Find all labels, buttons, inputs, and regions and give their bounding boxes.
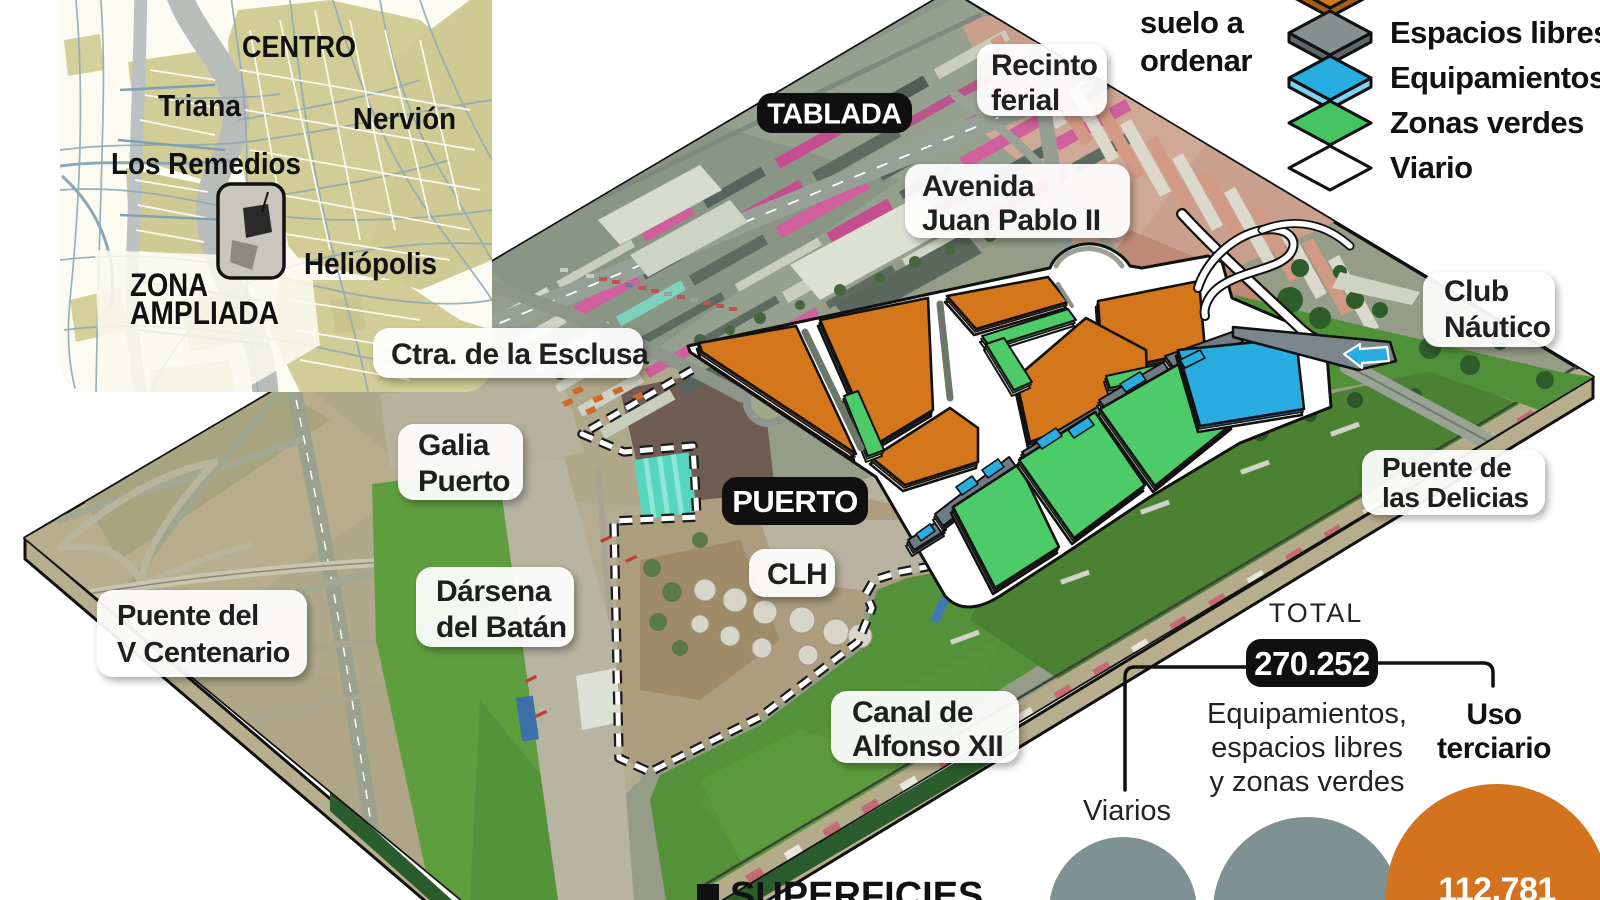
svg-text:Equipamientos: Equipamientos	[1390, 60, 1600, 95]
svg-text:PUERTO: PUERTO	[732, 484, 858, 519]
svg-text:Espacios libres: Espacios libres	[1390, 15, 1600, 50]
svg-text:Canal de: Canal de	[852, 696, 973, 729]
svg-text:Dársena: Dársena	[436, 575, 552, 608]
svg-text:AMPLIADA: AMPLIADA	[130, 295, 279, 331]
svg-text:CENTRO: CENTRO	[242, 29, 356, 64]
svg-text:terciario: terciario	[1437, 732, 1551, 765]
svg-text:SUPERFICIES: SUPERFICIES	[730, 875, 983, 900]
svg-text:Triana: Triana	[158, 88, 242, 123]
svg-text:suelo a: suelo a	[1140, 5, 1245, 40]
svg-text:TOTAL: TOTAL	[1269, 598, 1364, 628]
svg-text:Uso: Uso	[1466, 698, 1521, 731]
svg-text:Náutico: Náutico	[1444, 311, 1551, 344]
svg-text:del Batán: del Batán	[436, 611, 567, 644]
svg-text:V Centenario: V Centenario	[117, 637, 290, 669]
svg-text:Puente de: Puente de	[1382, 452, 1511, 483]
svg-text:Puerto: Puerto	[418, 465, 510, 498]
svg-text:espacios libres: espacios libres	[1211, 732, 1403, 764]
svg-text:Avenida: Avenida	[922, 170, 1035, 203]
svg-text:ordenar: ordenar	[1140, 43, 1252, 78]
svg-text:112.781: 112.781	[1438, 871, 1556, 900]
svg-text:las Delicias: las Delicias	[1382, 482, 1529, 513]
svg-text:Viario: Viario	[1390, 150, 1473, 185]
svg-text:270.252: 270.252	[1254, 645, 1370, 682]
svg-text:TABLADA: TABLADA	[767, 98, 902, 130]
svg-text:Puente del: Puente del	[117, 600, 259, 632]
svg-text:Viarios: Viarios	[1083, 795, 1171, 827]
svg-text:CLH: CLH	[767, 558, 827, 591]
svg-text:Ctra. de la Esclusa: Ctra. de la Esclusa	[391, 338, 649, 371]
svg-text:Nervión: Nervión	[353, 101, 456, 136]
svg-text:Los Remedios: Los Remedios	[111, 146, 301, 181]
svg-text:Heliópolis: Heliópolis	[304, 246, 437, 281]
svg-text:ferial: ferial	[991, 84, 1060, 117]
svg-text:Galia: Galia	[418, 429, 490, 462]
svg-text:Juan Pablo II: Juan Pablo II	[922, 204, 1101, 237]
svg-text:y zonas verdes: y zonas verdes	[1209, 766, 1404, 798]
svg-text:Zonas verdes: Zonas verdes	[1390, 105, 1584, 140]
svg-text:Equipamientos,: Equipamientos,	[1207, 698, 1407, 730]
svg-text:Recinto: Recinto	[991, 49, 1098, 82]
svg-text:Club: Club	[1444, 275, 1509, 308]
svg-text:Alfonso XII: Alfonso XII	[852, 730, 1003, 763]
